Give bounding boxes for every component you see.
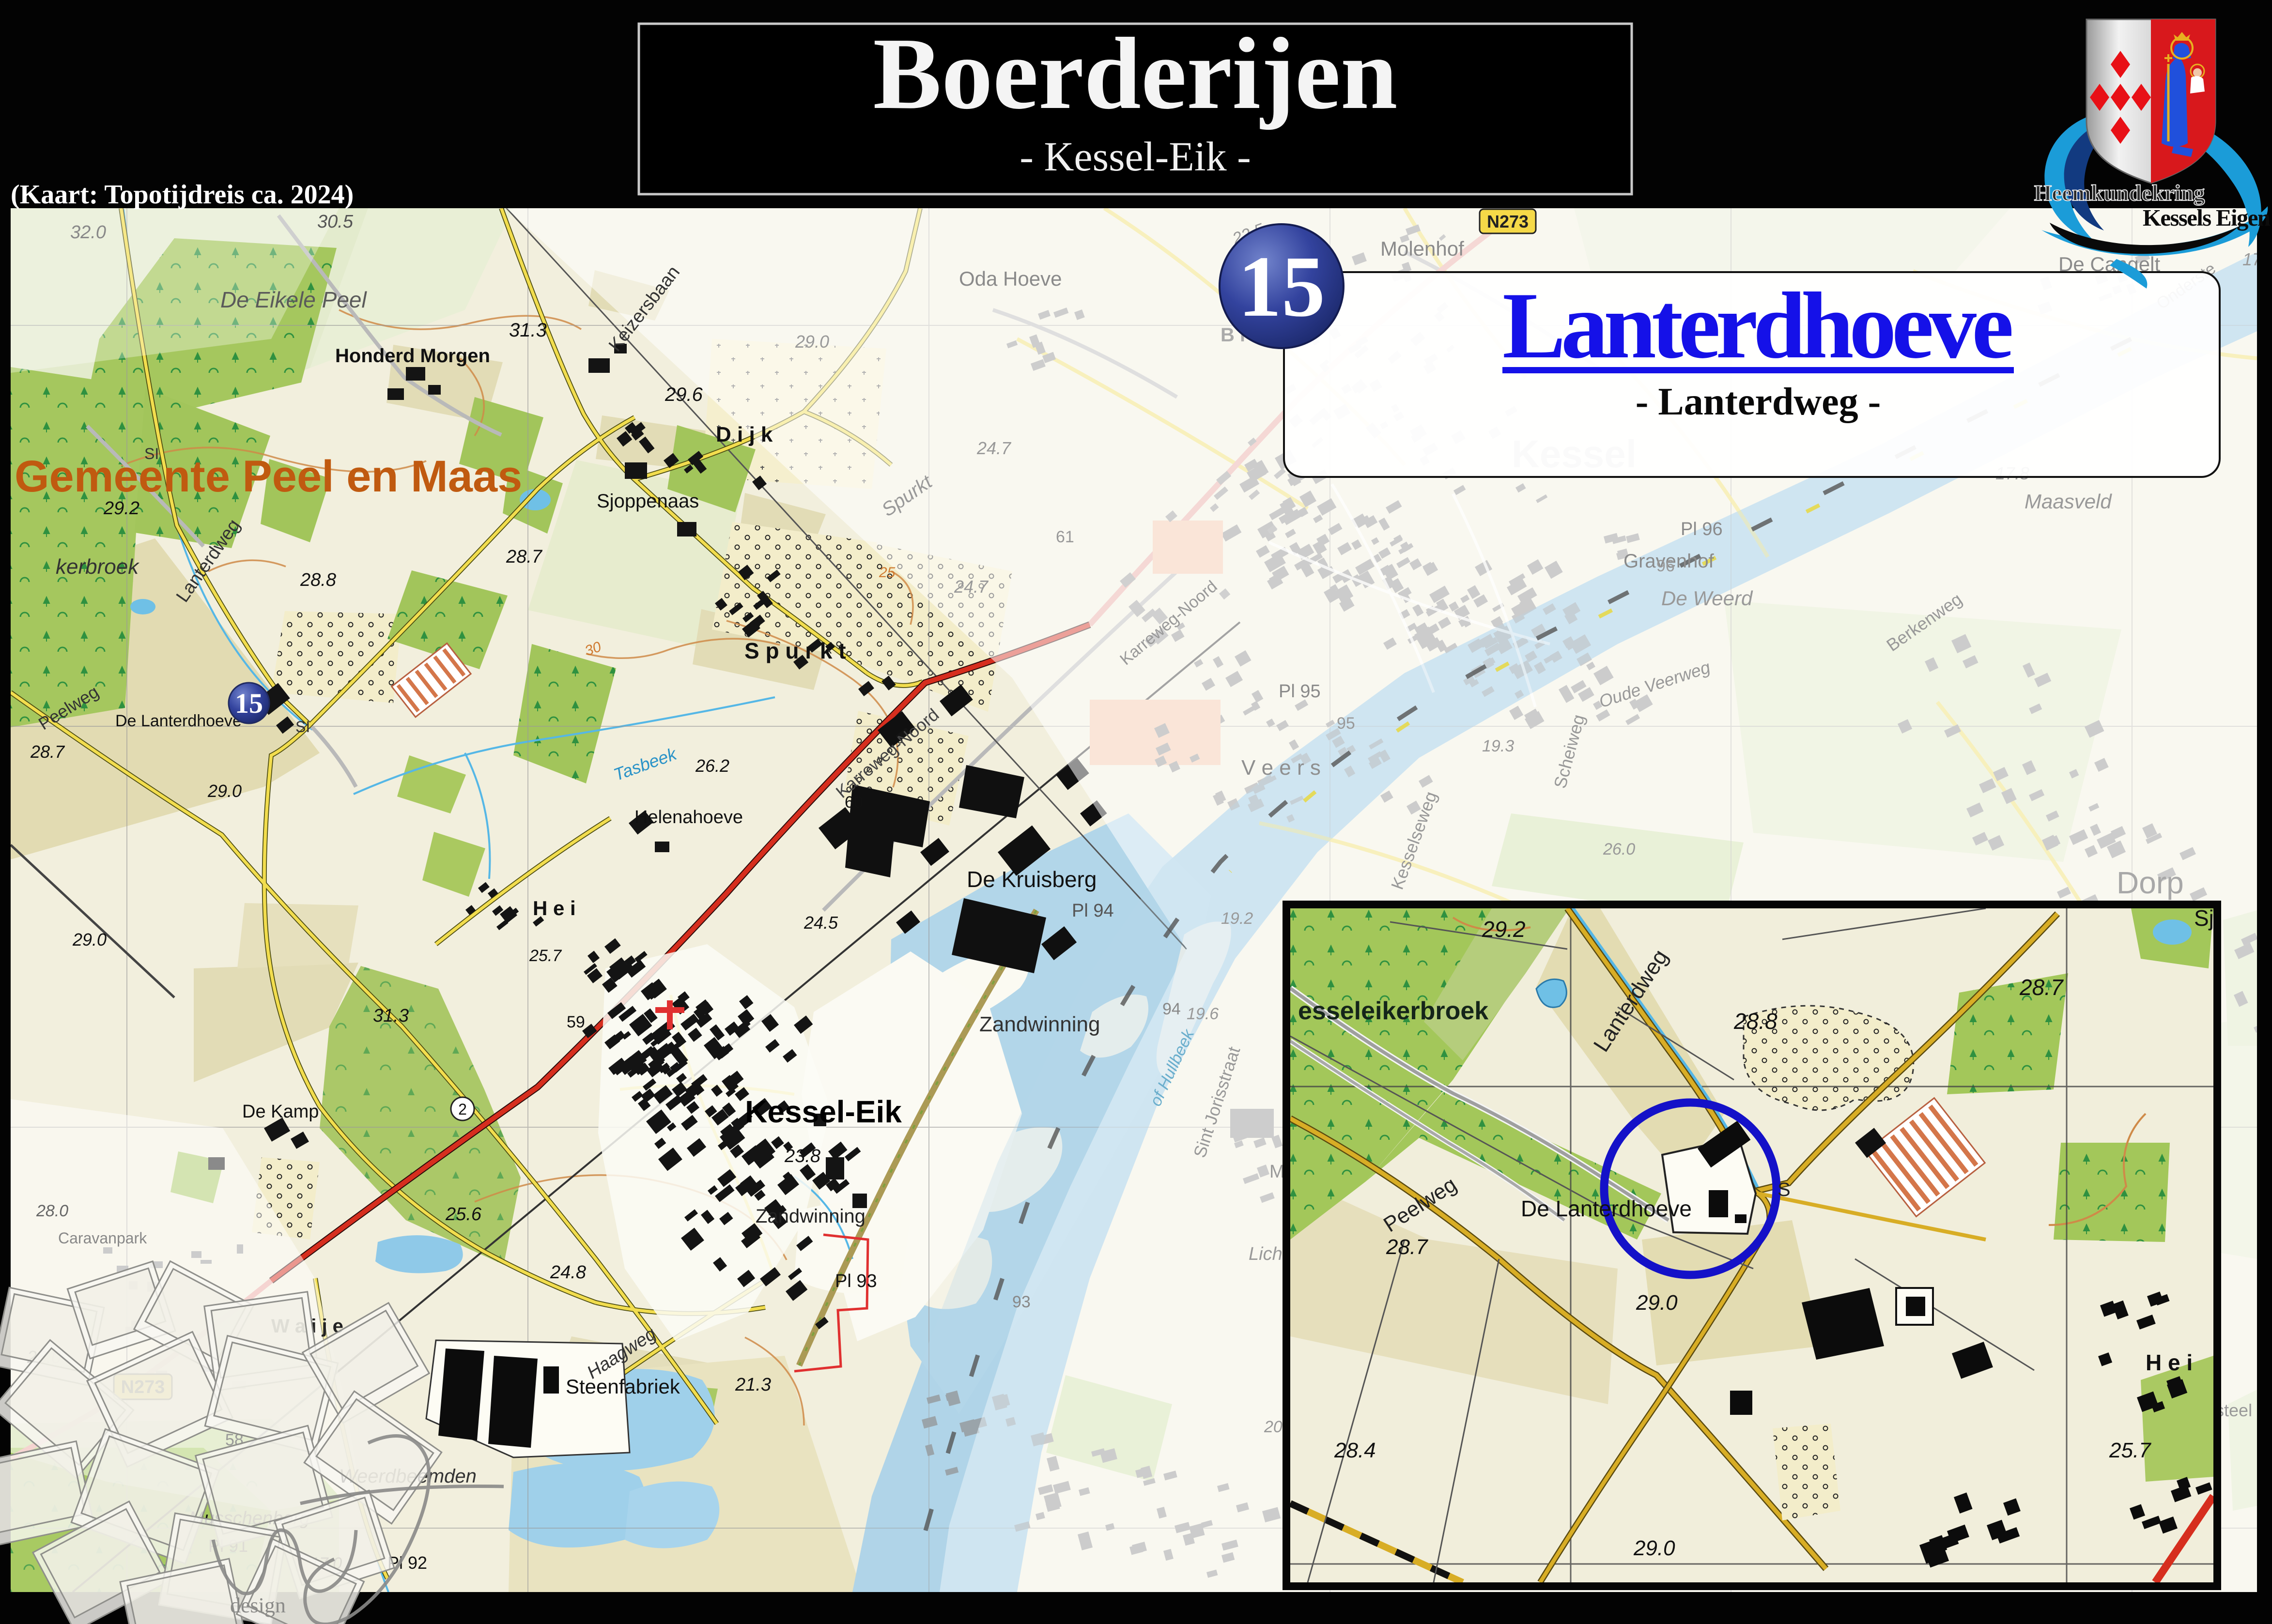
svg-text:61: 61 (1056, 528, 1074, 546)
svg-text:De Lanterdhoeve: De Lanterdhoeve (115, 712, 242, 730)
svg-text:23.8: 23.8 (784, 1146, 820, 1166)
svg-text:15: 15 (1238, 238, 1325, 335)
svg-text:Steenfabriek: Steenfabriek (566, 1375, 680, 1398)
svg-text:- Kessel-Eik -: - Kessel-Eik - (1020, 133, 1251, 180)
svg-text:24.7: 24.7 (976, 438, 1012, 458)
svg-text:Kessels Eigen: Kessels Eigen (2143, 204, 2271, 231)
svg-text:Honderd Morgen: Honderd Morgen (335, 345, 490, 367)
svg-text:Helenahoeve: Helenahoeve (634, 807, 743, 827)
svg-text:esseleikerbroek: esseleikerbroek (1298, 997, 1488, 1025)
svg-text:21.3: 21.3 (735, 1375, 771, 1395)
svg-text:De Kruisberg: De Kruisberg (967, 867, 1097, 892)
svg-text:Lanterdhoeve: Lanterdhoeve (1502, 273, 2014, 378)
svg-text:25.6: 25.6 (445, 1204, 482, 1225)
svg-text:H e i: H e i (2146, 1350, 2193, 1375)
svg-text:S: S (1777, 1179, 1791, 1200)
svg-text:Caravanpark: Caravanpark (58, 1229, 147, 1247)
svg-text:28.8: 28.8 (1733, 1009, 1777, 1034)
svg-text:28.7: 28.7 (506, 547, 543, 567)
svg-text:Zandwinning: Zandwinning (756, 1206, 866, 1227)
svg-text:2: 2 (458, 1101, 467, 1118)
svg-text:Molenhof: Molenhof (1380, 237, 1464, 260)
svg-text:31.3: 31.3 (373, 1006, 409, 1026)
svg-text:Boerderijen: Boerderijen (873, 16, 1397, 130)
svg-text:N273: N273 (1487, 212, 1529, 231)
svg-text:28.7: 28.7 (2019, 975, 2064, 1000)
svg-text:25.7: 25.7 (2109, 1439, 2151, 1462)
svg-text:96: 96 (1656, 557, 1675, 575)
svg-text:29.2: 29.2 (103, 498, 139, 519)
svg-text:28.7: 28.7 (30, 742, 65, 762)
svg-text:Pl 93: Pl 93 (835, 1271, 877, 1291)
svg-text:De Weerd: De Weerd (1661, 587, 1753, 610)
svg-text:D i j k: D i j k (716, 423, 773, 446)
svg-text:30.5: 30.5 (317, 212, 354, 232)
svg-text:94: 94 (1162, 1000, 1181, 1018)
svg-text:31.3: 31.3 (509, 320, 547, 341)
svg-text:SI: SI (144, 445, 159, 462)
svg-text:De Kamp: De Kamp (242, 1102, 319, 1122)
svg-text:De Eikele Peel: De Eikele Peel (220, 287, 367, 312)
svg-text:29.0: 29.0 (207, 781, 242, 801)
svg-text:24.7: 24.7 (954, 577, 989, 597)
svg-text:59: 59 (567, 1013, 585, 1031)
svg-text:Oda Hoeve: Oda Hoeve (959, 267, 1062, 290)
svg-text:Heemkundekring: Heemkundekring (2034, 181, 2205, 206)
svg-text:SI: SI (295, 718, 310, 735)
svg-text:Pl 94: Pl 94 (1072, 901, 1114, 921)
svg-text:29.0: 29.0 (1633, 1536, 1675, 1560)
svg-text:15: 15 (235, 688, 263, 719)
svg-text:25: 25 (879, 565, 896, 581)
svg-text:93: 93 (1012, 1293, 1031, 1311)
svg-text:Pl 95: Pl 95 (1279, 681, 1321, 702)
svg-text:28.8: 28.8 (300, 570, 336, 590)
svg-text:De Lanterdhoeve: De Lanterdhoeve (1521, 1196, 1692, 1221)
svg-text:19.3: 19.3 (1482, 737, 1514, 755)
svg-text:28.0: 28.0 (36, 1202, 68, 1220)
svg-text:29.2: 29.2 (1482, 917, 1526, 942)
svg-text:- Lanterdweg -: - Lanterdweg - (1636, 381, 1881, 423)
svg-text:24.8: 24.8 (550, 1262, 586, 1283)
svg-text:S p u r k t: S p u r k t (744, 638, 846, 663)
svg-text:29.6: 29.6 (665, 384, 703, 405)
svg-text:Sjoppenaas: Sjoppenaas (597, 490, 699, 512)
svg-text:28.4: 28.4 (1334, 1439, 1376, 1462)
svg-text:Dorp: Dorp (2117, 865, 2184, 900)
svg-text:19.6: 19.6 (1187, 1005, 1219, 1023)
svg-text:Gemeente Peel en Maas: Gemeente Peel en Maas (15, 452, 522, 501)
svg-text:H e i: H e i (533, 897, 576, 919)
svg-text:26.2: 26.2 (695, 756, 729, 776)
svg-text:25.7: 25.7 (529, 947, 562, 965)
svg-text:design: design (230, 1593, 286, 1617)
svg-text:Pl 92: Pl 92 (387, 1553, 427, 1573)
svg-text:(Kaart: Topotijdreis ca. 2024): (Kaart: Topotijdreis ca. 2024) (11, 180, 354, 210)
svg-text:29.0: 29.0 (72, 930, 107, 950)
svg-text:32.0: 32.0 (70, 222, 106, 243)
svg-text:29.0: 29.0 (795, 332, 829, 352)
svg-text:Pl 96: Pl 96 (1681, 519, 1723, 539)
svg-text:24.5: 24.5 (804, 913, 838, 933)
svg-text:kerbroek: kerbroek (56, 555, 139, 579)
svg-text:Zandwinning: Zandwinning (979, 1012, 1100, 1036)
svg-text:28.7: 28.7 (1386, 1235, 1428, 1259)
svg-text:26.0: 26.0 (1603, 840, 1635, 858)
svg-text:V e e r s: V e e r s (1241, 756, 1321, 780)
svg-text:Kessel-Eik: Kessel-Eik (745, 1094, 902, 1129)
svg-text:95: 95 (1337, 714, 1355, 733)
svg-text:Maasveld: Maasveld (2025, 490, 2112, 513)
svg-text:19.2: 19.2 (1221, 909, 1253, 928)
svg-text:29.0: 29.0 (1636, 1291, 1678, 1315)
